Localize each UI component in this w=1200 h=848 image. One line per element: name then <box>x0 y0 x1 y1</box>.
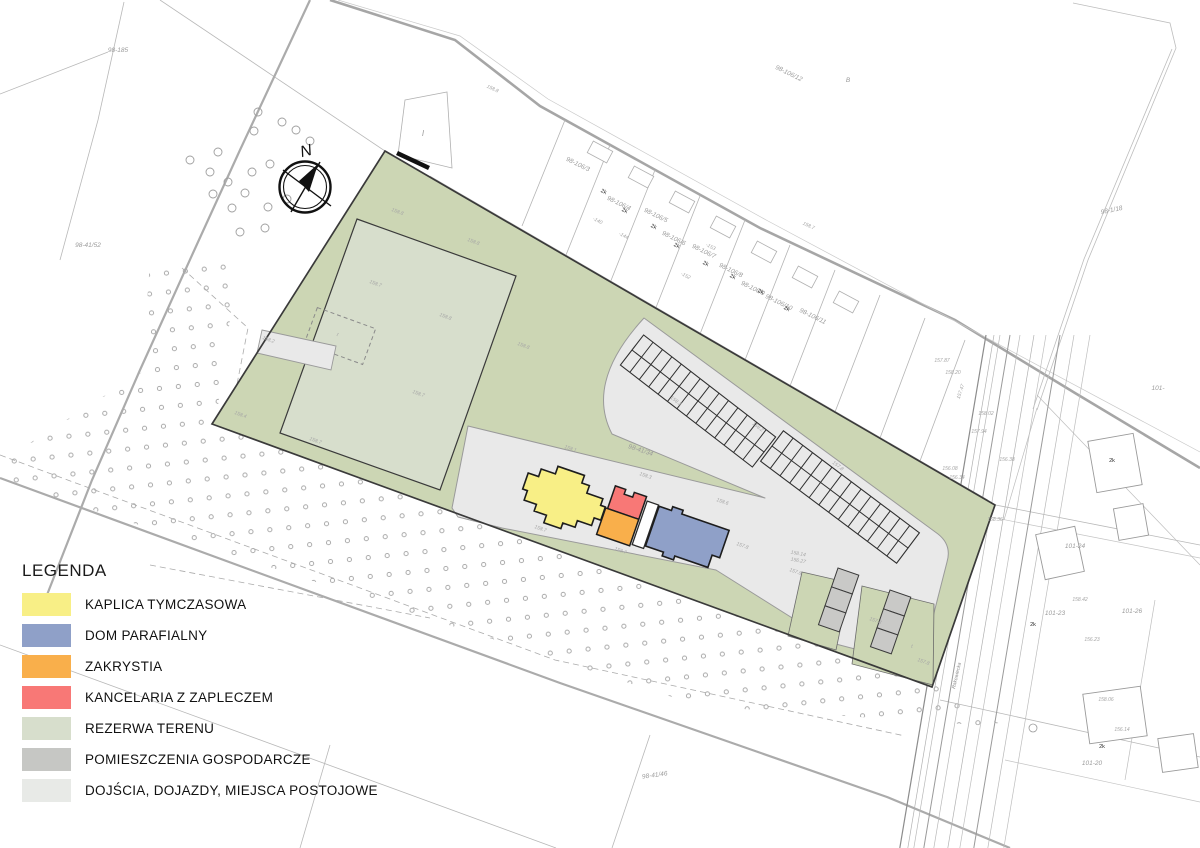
building-class-marker: 2k <box>783 305 791 313</box>
manhole-symbol <box>1029 724 1037 732</box>
parcel-label: 98-106/12 <box>774 64 804 83</box>
building-class-marker: 2k <box>729 273 737 281</box>
legend-title: LEGENDA <box>22 561 378 580</box>
building-class-marker: 2k <box>621 207 629 215</box>
legend-swatch-rezerwa <box>22 717 71 740</box>
legend-item-kaplica: KAPLICA TYMCZASOWA <box>22 593 378 616</box>
legend-label: DOJŚCIA, DOJAZDY, MIEJSCA POSTOJOWE <box>85 783 378 798</box>
parcel-label: 101-20 <box>1082 760 1103 767</box>
legend-label: REZERWA TERENU <box>85 721 214 736</box>
elevation-label: 156.34 <box>949 475 965 481</box>
legend-item-zakrystia: ZAKRYSTIA <box>22 655 378 678</box>
building-class-marker: 2k <box>702 260 710 268</box>
elevation-label: 158.02 <box>978 411 994 417</box>
parcel-label: 98-1/18 <box>1100 205 1123 217</box>
legend-label: DOM PARAFIALNY <box>85 628 207 643</box>
legend-item-dom: DOM PARAFIALNY <box>22 624 378 647</box>
legend-label: ZAKRYSTIA <box>85 659 162 674</box>
legend-item-kancelaria: KANCELARIA Z ZAPLECZEM <box>22 686 378 709</box>
legend-items: KAPLICA TYMCZASOWADOM PARAFIALNYZAKRYSTI… <box>22 593 378 802</box>
compass-needle <box>299 164 318 192</box>
legend-label: KAPLICA TYMCZASOWA <box>85 597 246 612</box>
legend-item-dojscia: DOJŚCIA, DOJAZDY, MIEJSCA POSTOJOWE <box>22 779 378 802</box>
site-plan-page: 98-18598-41/5298-41/3498-41/4698-1/1898-… <box>0 0 1200 848</box>
neighbor-houses-north <box>587 141 859 313</box>
elevation-label: 156.23 <box>1084 637 1100 643</box>
legend-label: KANCELARIA Z ZAPLECZEM <box>85 690 273 705</box>
building-class-marker: 2k <box>600 188 608 196</box>
legend-swatch-kancelaria <box>22 686 71 709</box>
elevation-label: 157.87 <box>934 358 950 364</box>
legend-label: POMIESZCZENIA GOSPODARCZE <box>85 752 311 767</box>
parcel-label: 101-26 <box>1122 608 1143 615</box>
elevation-label: 158.8 <box>485 84 499 95</box>
elevation-label: 156.08 <box>942 466 958 472</box>
legend-item-gospodarcze: POMIESZCZENIA GOSPODARCZE <box>22 748 378 771</box>
legend-item-rezerwa: REZERWA TERENU <box>22 717 378 740</box>
elevation-label: 158.42 <box>1072 597 1088 603</box>
legend: LEGENDA KAPLICA TYMCZASOWADOM PARAFIALNY… <box>22 561 378 810</box>
neighbor-houses-east <box>1036 433 1199 772</box>
elevation-label: 156.38 <box>999 457 1015 463</box>
elevation-label: 157.47 <box>956 383 966 400</box>
elevation-label: -152 <box>680 271 692 281</box>
parcel-label: 98-185 <box>108 47 129 54</box>
building-class-marker: 2k <box>1030 622 1036 628</box>
elevation-label: 157.94 <box>971 429 987 435</box>
legend-swatch-kaplica <box>22 593 71 616</box>
parcel-label: 101- <box>1151 385 1165 392</box>
elevation-label: 158.7 <box>801 221 815 232</box>
legend-swatch-gospodarcze <box>22 748 71 771</box>
legend-swatch-zakrystia <box>22 655 71 678</box>
road-edge-line <box>988 335 1074 848</box>
legend-swatch-dom <box>22 624 71 647</box>
building-class-marker: 2k <box>650 223 658 231</box>
parcel-label: 98-106/5 <box>643 207 669 225</box>
parcel-label: 98-106/11 <box>798 307 827 326</box>
legend-swatch-dojscia <box>22 779 71 802</box>
elevation-label: 158.36 <box>987 517 1003 523</box>
parcel-label: 101-23 <box>1045 610 1066 617</box>
parcel-label: 101-24 <box>1065 543 1086 550</box>
elevation-label: -140 <box>592 216 604 226</box>
elevation-label: 158.20 <box>945 370 961 376</box>
parcel-I-label: I <box>422 129 425 138</box>
compass-rose: N <box>280 142 332 213</box>
building-class-marker: 2k <box>1099 744 1105 750</box>
elevation-label: 158.06 <box>1098 697 1114 703</box>
parcel-label: 98-41/46 <box>642 770 669 781</box>
parcel-label: 98-41/52 <box>75 242 101 249</box>
parcel-label: B <box>846 77 851 84</box>
elevation-label: 156.14 <box>1114 727 1130 733</box>
building-class-marker: 2k <box>1109 458 1115 464</box>
parcel-label: 98-106/3 <box>565 156 591 174</box>
